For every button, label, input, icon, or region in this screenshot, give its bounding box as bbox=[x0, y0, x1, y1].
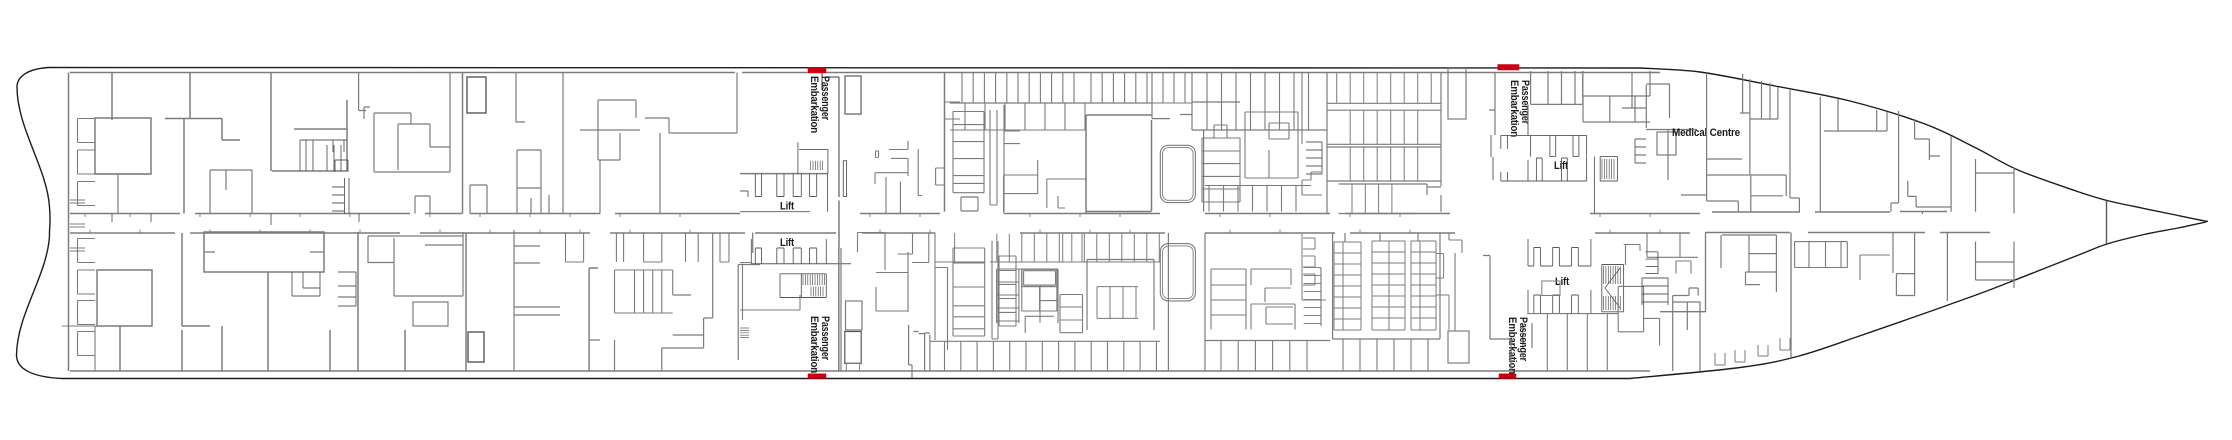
svg-text:Embarkation: Embarkation bbox=[1506, 317, 1518, 374]
svg-text:Embarkation: Embarkation bbox=[808, 316, 820, 373]
svg-text:Lift: Lift bbox=[780, 237, 794, 249]
svg-text:Lift: Lift bbox=[1555, 276, 1569, 288]
svg-text:Embarkation: Embarkation bbox=[1508, 80, 1520, 137]
svg-text:Lift: Lift bbox=[780, 201, 794, 213]
svg-text:Embarkation: Embarkation bbox=[808, 76, 820, 133]
